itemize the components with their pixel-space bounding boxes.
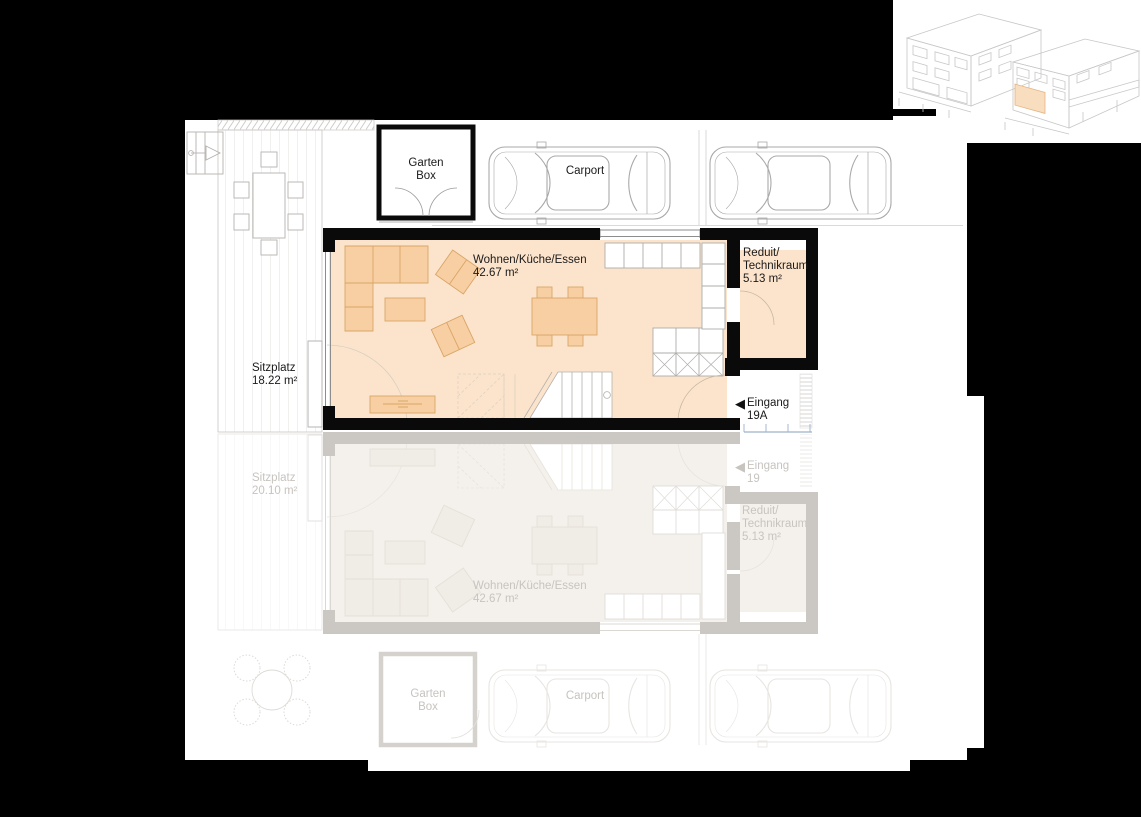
- garten-box-line1: Garten: [396, 688, 460, 701]
- entrance-grate: [800, 374, 812, 428]
- building-overview-sketch: [893, 0, 1141, 143]
- garten-box-line2: Box: [396, 701, 460, 714]
- room-name: Technikraum: [742, 518, 807, 531]
- room-area: 42.67 m²: [473, 267, 587, 280]
- carport-label: Carport: [540, 165, 630, 178]
- garten-box-label: Garten Box: [394, 157, 458, 183]
- eingang-19-label: ◀ Eingang 19: [735, 460, 789, 486]
- room-name: Wohnen/Küche/Essen: [473, 254, 587, 267]
- room-name: Technikraum: [743, 260, 808, 273]
- reduit-label: Reduit/ Technikraum 5.13 m²: [743, 247, 808, 286]
- room-area: 20.10 m²: [252, 485, 297, 498]
- room-name: Wohnen/Küche/Essen: [473, 580, 587, 593]
- eingang-19a-label: ◀ Eingang 19A: [735, 397, 789, 423]
- neighbor-garten-box-label: Garten Box: [396, 688, 460, 714]
- entrance-name: Eingang: [747, 397, 789, 410]
- room-name: Sitzplatz: [252, 362, 297, 375]
- neighbor-reduit-label: Reduit/ Technikraum 5.13 m²: [742, 505, 807, 544]
- room-area: 18.22 m²: [252, 375, 297, 388]
- car-icon: [489, 142, 670, 224]
- garten-box-line1: Garten: [394, 157, 458, 170]
- room-area: 5.13 m²: [743, 273, 808, 286]
- entrance-arrow-icon: ◀: [735, 460, 745, 473]
- neighbor-sitzplatz-label: Sitzplatz 20.10 m²: [252, 472, 297, 498]
- neighbor-carport-label: Carport: [540, 690, 630, 703]
- room-name: Reduit/: [743, 247, 808, 260]
- sitzplatz-label: Sitzplatz 18.22 m²: [252, 362, 297, 388]
- wohnen-label: Wohnen/Küche/Essen 42.67 m²: [473, 254, 587, 280]
- room-name: Reduit/: [742, 505, 807, 518]
- wardrobe: [702, 243, 725, 329]
- floor-plan-page: Garten Box Carport Wohnen/Küche/Essen 42…: [0, 0, 1141, 817]
- kitchen-counter: [605, 243, 700, 268]
- room-name: Sitzplatz: [252, 472, 297, 485]
- room-area: 5.13 m²: [742, 531, 807, 544]
- neighbor-wohnen-label: Wohnen/Küche/Essen 42.67 m²: [473, 580, 587, 606]
- car-icon: [710, 142, 891, 224]
- garten-box-line2: Box: [394, 170, 458, 183]
- room-area: 42.67 m²: [473, 593, 587, 606]
- entrance-arrow-icon: ◀: [735, 397, 745, 410]
- entrance-name: Eingang: [747, 460, 789, 473]
- entrance-number: 19A: [747, 410, 789, 423]
- entrance-number: 19: [747, 473, 789, 486]
- kitchen-island: [653, 328, 723, 376]
